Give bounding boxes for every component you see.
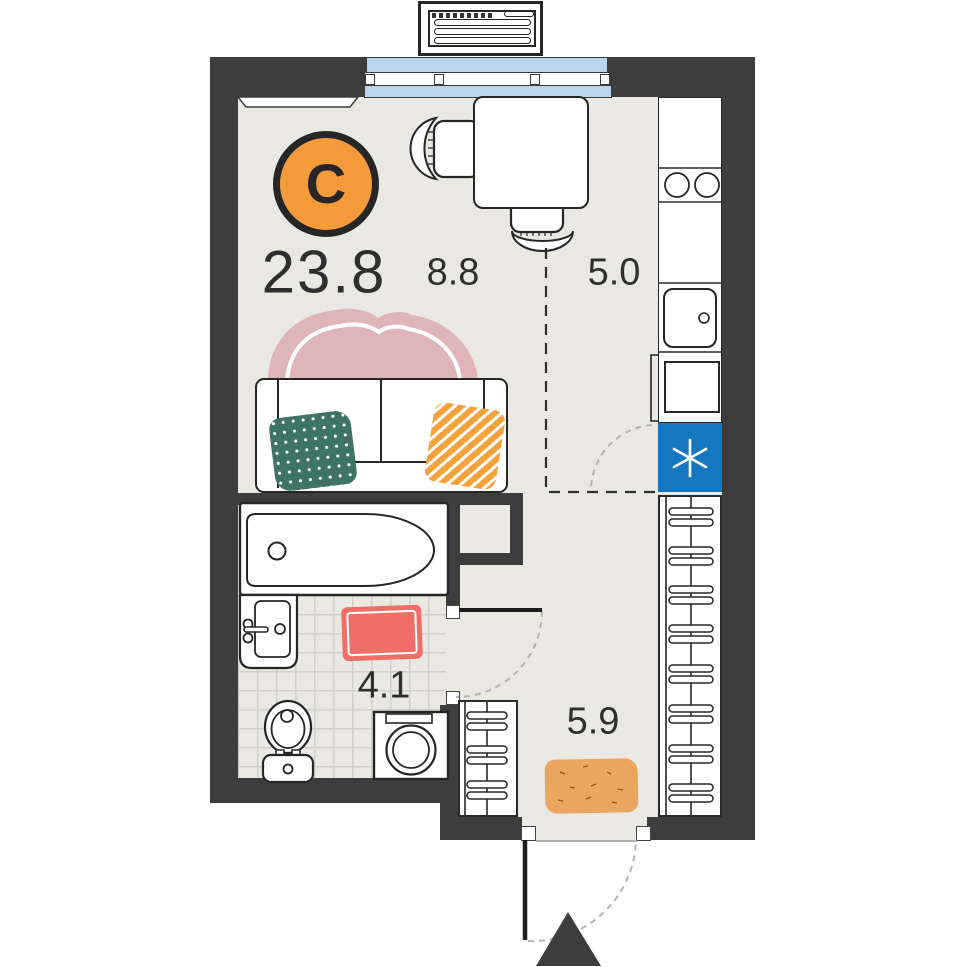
washing-machine <box>374 712 448 779</box>
doormat-speckles <box>558 766 623 803</box>
total-area-label: 23.8 <box>262 238 387 307</box>
fridge-door-swing-arc <box>591 425 652 491</box>
sofa-pillow-orange <box>423 401 507 491</box>
hall-area-label: 5.9 <box>567 701 620 744</box>
snowflake-asterisk-icon <box>674 440 706 476</box>
stove-burners-icon <box>665 173 719 197</box>
entry-door-swing-arc <box>528 841 636 941</box>
toilet <box>263 701 313 782</box>
wardrobe-hall-hangers <box>465 702 507 815</box>
compass-north-badge: С <box>273 131 379 237</box>
wardrobe-right-hangers <box>666 497 713 815</box>
bathroom-door-swing-arc <box>456 611 542 697</box>
window-sill <box>238 97 358 107</box>
chair-left <box>411 118 480 179</box>
bathtub <box>240 503 448 595</box>
dining-table <box>473 96 589 209</box>
entry-arrow-triangle-icon <box>536 912 601 966</box>
bath-mat-inner-line <box>346 610 417 656</box>
built-in-appliance <box>651 355 719 421</box>
compass-letter: С <box>306 156 346 212</box>
bath-mat <box>341 605 423 662</box>
floor-plan: С 23.8 8.8 5.0 4.1 5.9 <box>0 0 967 967</box>
living-area-label: 8.8 <box>427 252 480 295</box>
sofa-cushion-divider <box>380 380 382 463</box>
bathroom-sink <box>240 595 297 668</box>
sofa-pillow-teal <box>268 409 358 492</box>
kitchen-sink-icon <box>664 289 716 347</box>
bathroom-area-label: 4.1 <box>358 665 411 708</box>
kitchen-area-label: 5.0 <box>588 252 641 295</box>
